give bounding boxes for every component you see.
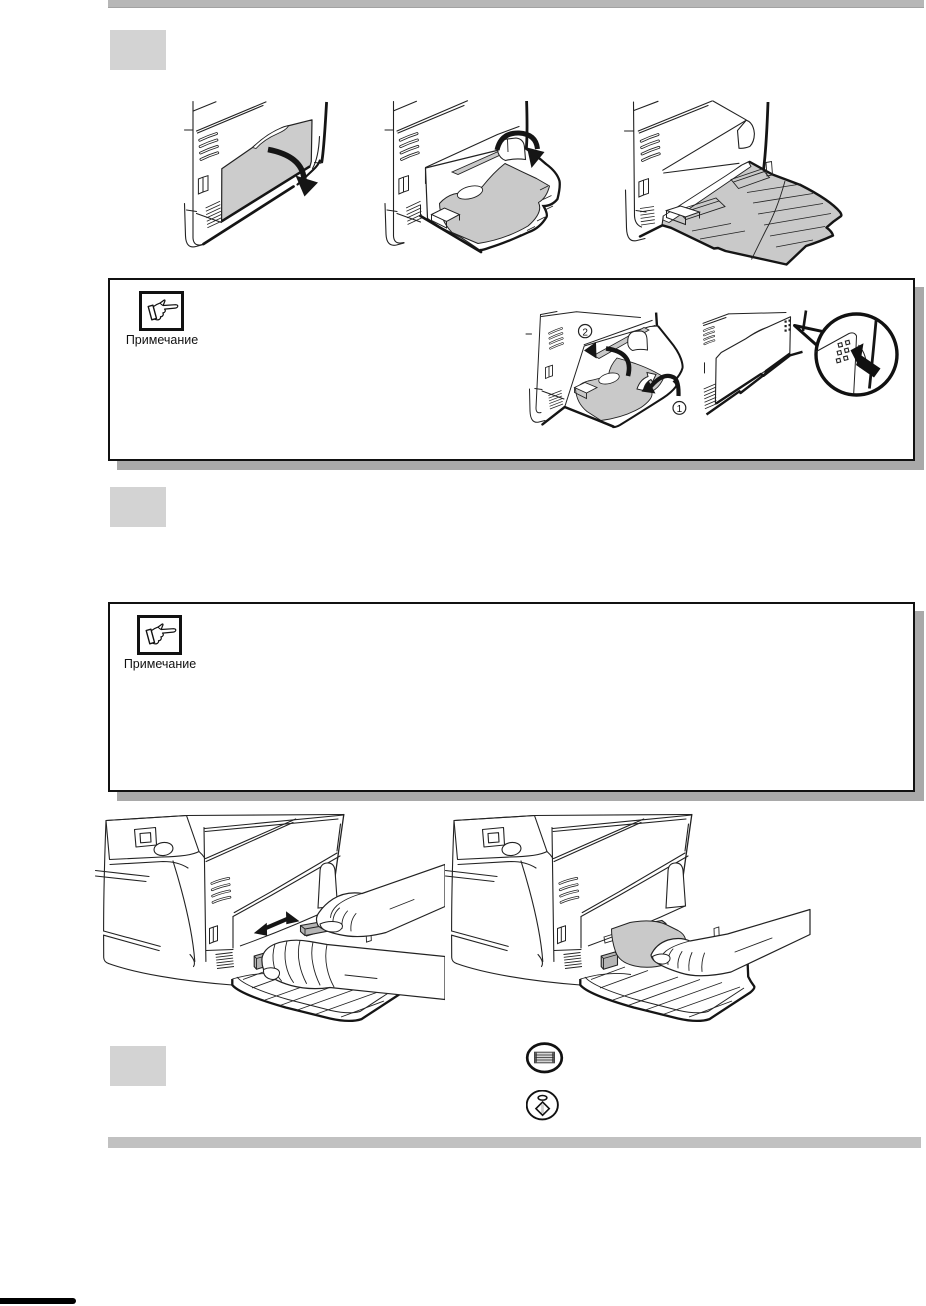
svg-text:1: 1 [677,404,683,415]
svg-text:2: 2 [582,327,588,338]
